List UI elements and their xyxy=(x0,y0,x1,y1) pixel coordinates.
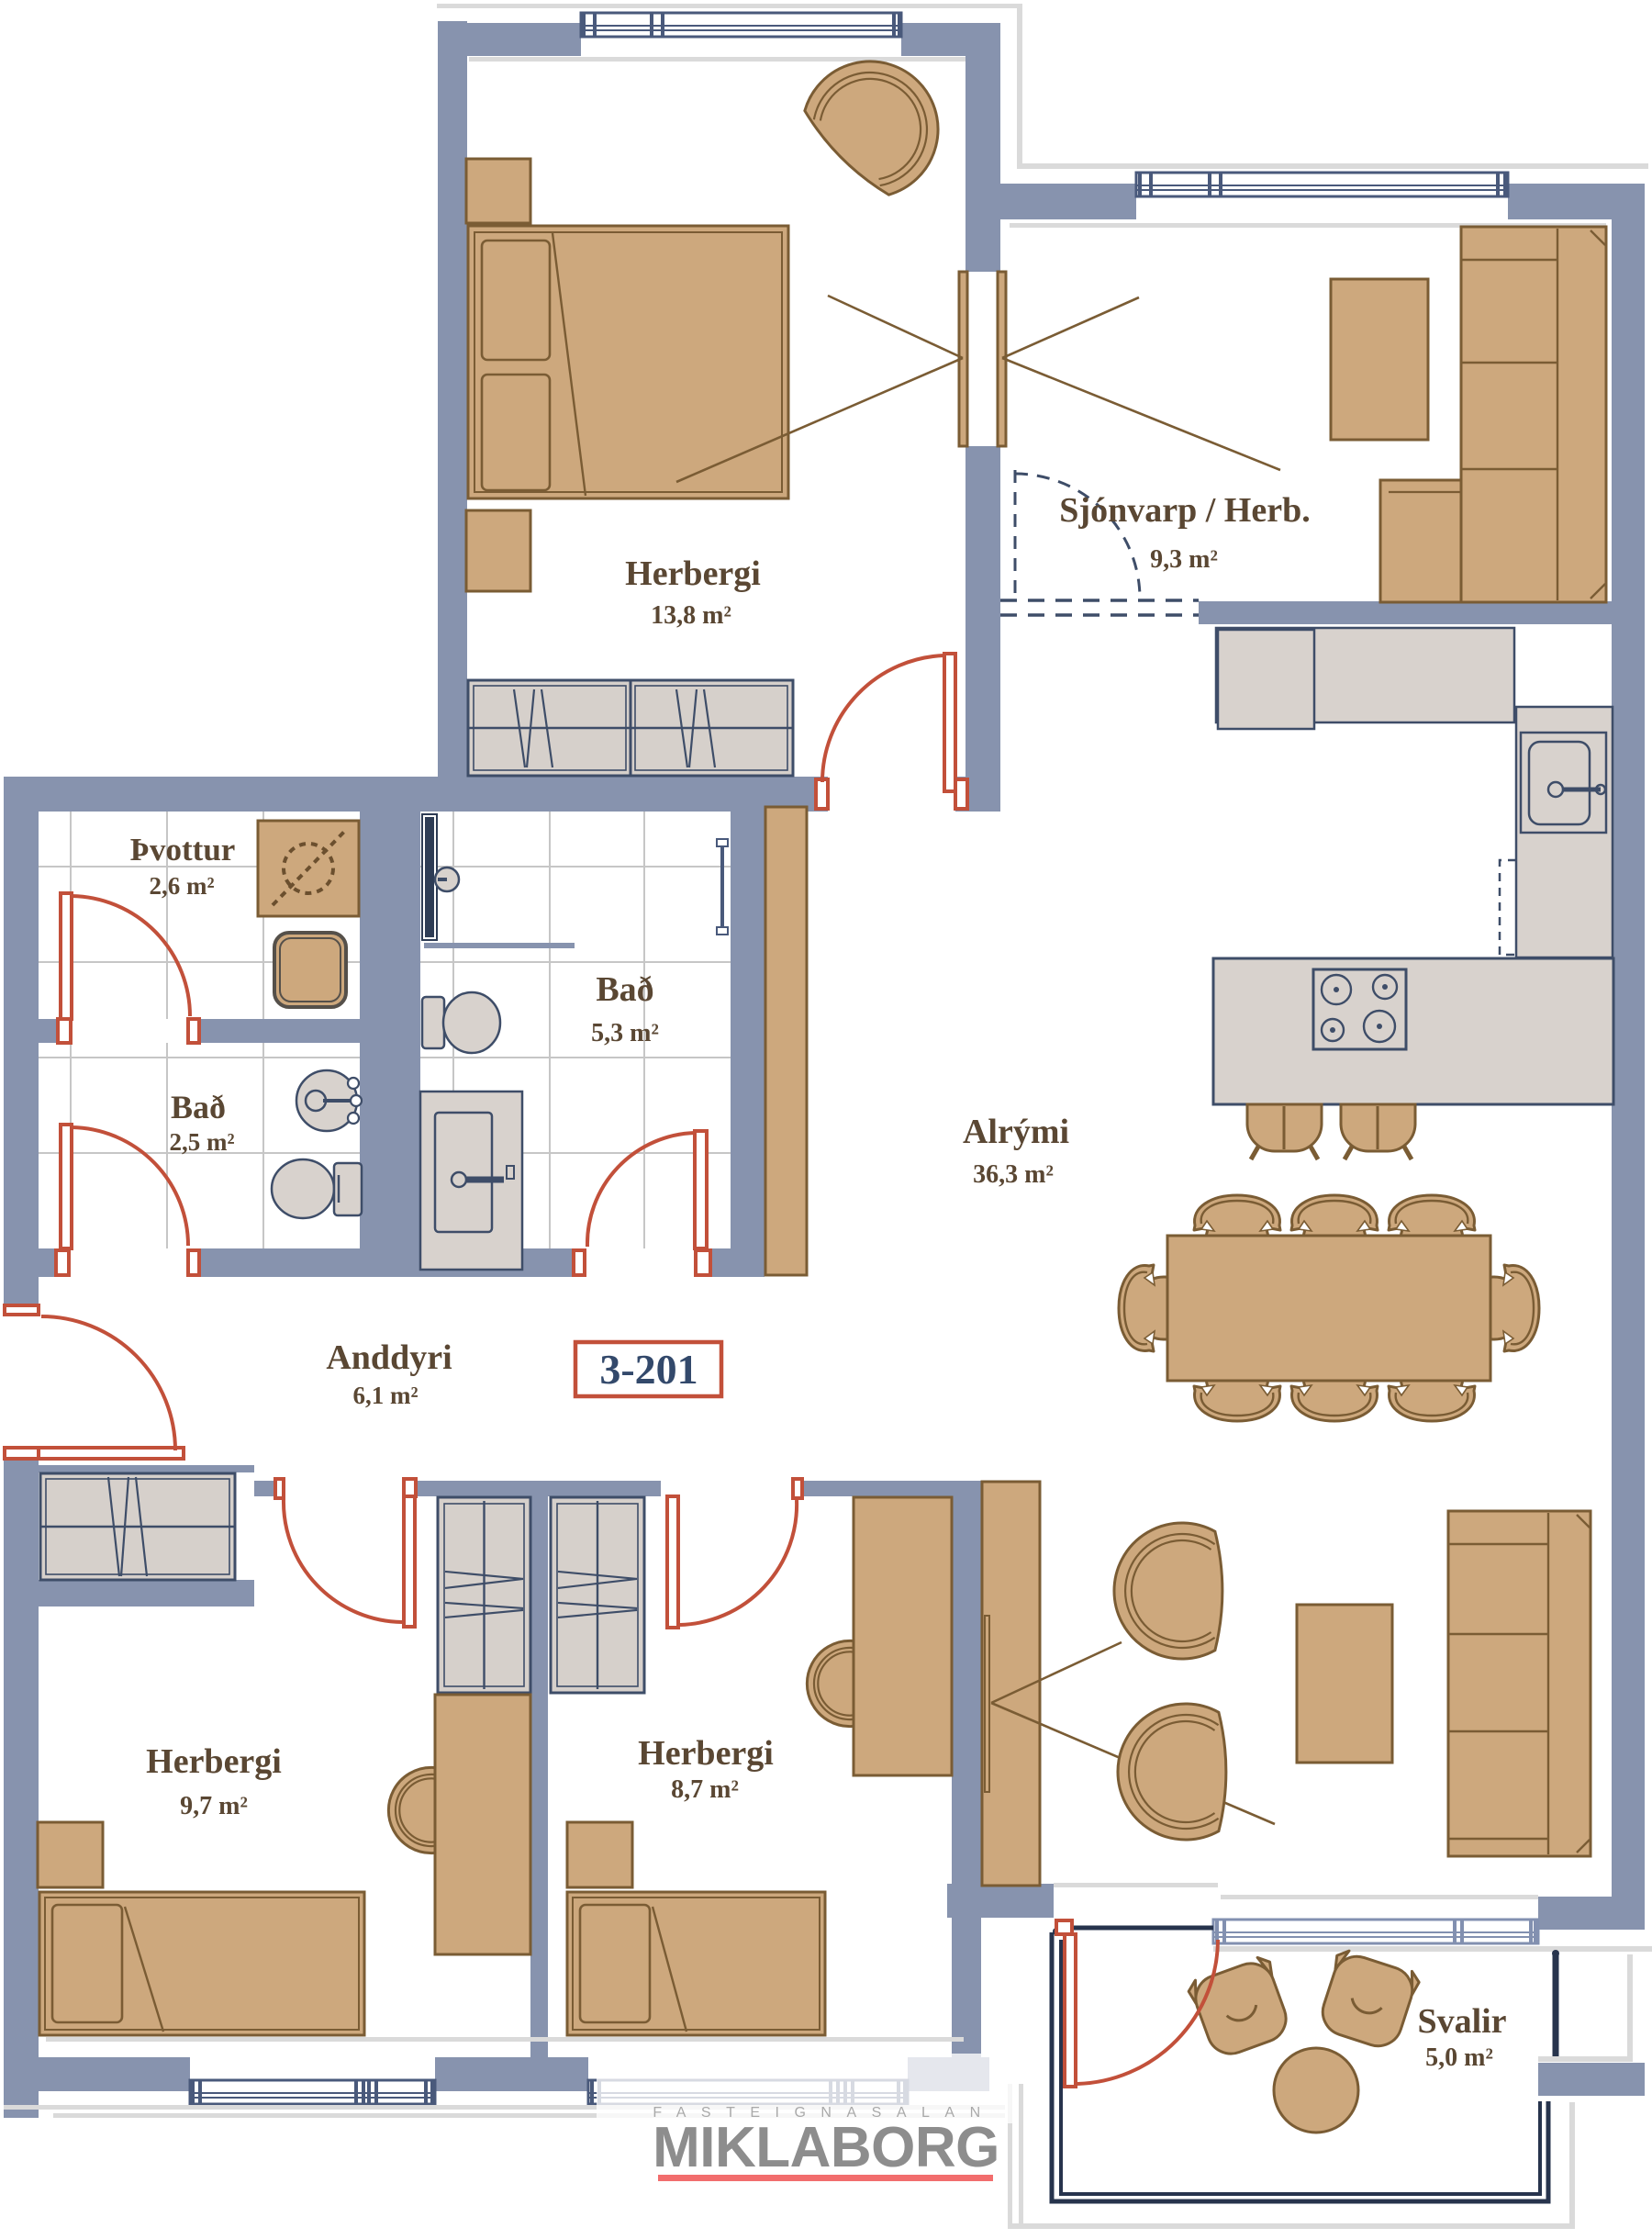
svg-text:Alrými: Alrými xyxy=(963,1113,1069,1151)
svg-text:3-201: 3-201 xyxy=(599,1346,698,1393)
svg-text:5,0 m²: 5,0 m² xyxy=(1425,2043,1493,2072)
svg-text:Herbergi: Herbergi xyxy=(638,1734,774,1773)
svg-text:Herbergi: Herbergi xyxy=(625,554,761,593)
svg-text:MIKLABORG: MIKLABORG xyxy=(653,2116,999,2179)
svg-text:13,8 m²: 13,8 m² xyxy=(651,601,731,630)
svg-text:2,6 m²: 2,6 m² xyxy=(149,872,214,900)
svg-text:9,3 m²: 9,3 m² xyxy=(1150,545,1218,574)
svg-text:Sjónvarp / Herb.: Sjónvarp / Herb. xyxy=(1059,491,1310,530)
svg-text:Herbergi: Herbergi xyxy=(146,1742,282,1781)
svg-text:5,3 m²: 5,3 m² xyxy=(591,1019,659,1047)
svg-text:Bað: Bað xyxy=(596,970,653,1009)
svg-text:Bað: Bað xyxy=(171,1089,226,1125)
svg-text:Þvottur: Þvottur xyxy=(130,832,236,868)
svg-text:36,3 m²: 36,3 m² xyxy=(973,1160,1054,1189)
svg-text:Svalir: Svalir xyxy=(1417,2002,1506,2041)
svg-text:2,5 m²: 2,5 m² xyxy=(169,1128,234,1156)
svg-text:8,7 m²: 8,7 m² xyxy=(671,1775,739,1804)
svg-text:Anddyri: Anddyri xyxy=(326,1338,452,1377)
svg-text:6,1 m²: 6,1 m² xyxy=(352,1382,418,1409)
svg-text:9,7 m²: 9,7 m² xyxy=(180,1792,248,1820)
